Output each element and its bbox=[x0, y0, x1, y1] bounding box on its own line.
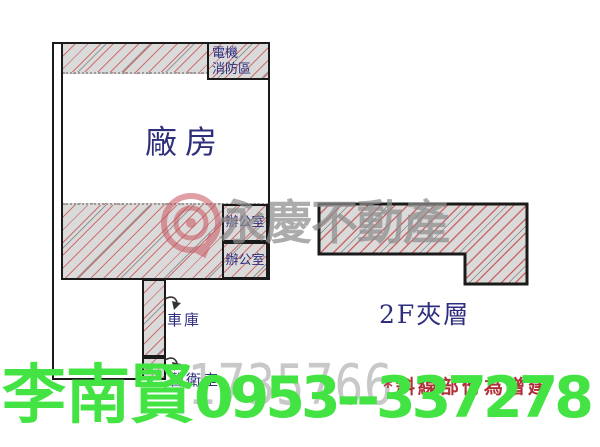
office-lower-label: 辦公室 bbox=[225, 253, 264, 269]
mezzanine-label: 2F夾層 bbox=[379, 295, 470, 331]
factory-label: 廠房 bbox=[145, 117, 225, 163]
garage-label: 車庫 bbox=[167, 309, 201, 330]
agent-name: 李南賢 bbox=[2, 359, 194, 433]
floor-plan-canvas: 電機 消防區 廠房 辦公室 辦公室 車庫 警衛室 bbox=[0, 0, 600, 447]
agent-contact-text: 李南賢0953--337278 bbox=[2, 364, 590, 428]
site-boundary-left bbox=[52, 42, 54, 380]
electrical-fire-area-label-line2: 消防區 bbox=[212, 62, 268, 78]
garage-corridor-box bbox=[142, 279, 166, 357]
brand-watermark-text: 永慶不動產 bbox=[219, 200, 449, 247]
agent-phone: 0953--337278 bbox=[194, 365, 590, 431]
electrical-fire-area-label-line1: 電機 bbox=[212, 46, 268, 62]
electrical-fire-area-box: 電機 消防區 bbox=[207, 42, 270, 80]
brand-g-logo-icon bbox=[160, 190, 226, 260]
